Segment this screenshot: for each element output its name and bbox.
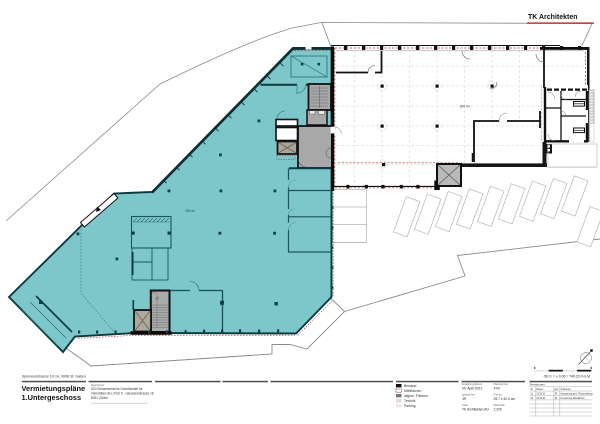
svg-text:Massstab: Massstab bbox=[494, 403, 506, 407]
svg-text:SGI Schweizerische Gesellschaf: SGI Schweizerische Gesellschaft für bbox=[91, 387, 143, 391]
svg-text:762 m²: 762 m² bbox=[185, 209, 195, 213]
svg-text:09. April 2021: 09. April 2021 bbox=[462, 387, 482, 391]
svg-text:allgem. Flächen: allgem. Flächen bbox=[404, 394, 428, 398]
svg-text:Autor: Autor bbox=[462, 403, 468, 407]
svg-text:1:200: 1:200 bbox=[494, 407, 502, 411]
svg-text:Anpassung gem. Rückmeldung: Anpassung gem. Rückmeldung bbox=[561, 393, 594, 396]
svg-text:Eigentümer: Eigentümer bbox=[91, 383, 104, 387]
svg-text:Nr.: Nr. bbox=[531, 388, 534, 391]
svg-text:gez.: gez. bbox=[555, 389, 560, 391]
svg-text:TK Architekten: TK Architekten bbox=[528, 12, 578, 21]
svg-text:1.Untergeschoss: 1.Untergeschoss bbox=[22, 393, 82, 402]
svg-text:Revisionen: Revisionen bbox=[530, 383, 545, 387]
svg-text:Datum: Datum bbox=[537, 388, 544, 391]
svg-text:XXX: XXX bbox=[494, 387, 501, 391]
svg-text:Plannummer: Plannummer bbox=[494, 382, 509, 386]
svg-text:Parking: Parking bbox=[404, 404, 416, 408]
svg-text:807 m²: 807 m² bbox=[460, 105, 470, 109]
svg-text:JR: JR bbox=[462, 397, 467, 401]
svg-text:Bestand: Bestand bbox=[404, 384, 417, 388]
svg-text:Änderung: Änderung bbox=[561, 388, 572, 391]
svg-text:Spinnereistrasse 10-14, 9008 S: Spinnereistrasse 10-14, 9008 St. Gallen bbox=[22, 374, 86, 378]
svg-text:Umnutzung Mietflächen: Umnutzung Mietflächen bbox=[561, 397, 586, 400]
svg-text:TK Architekten AG: TK Architekten AG bbox=[462, 407, 489, 411]
svg-text:Technik: Technik bbox=[404, 399, 416, 403]
svg-text:Mietflächen: Mietflächen bbox=[404, 389, 421, 393]
svg-text:Erstellungsdatum: Erstellungsdatum bbox=[462, 382, 482, 386]
svg-text:gezeichnet: gezeichnet bbox=[462, 392, 475, 396]
svg-text:Immobilien AG | Pub 5 - Giesse: Immobilien AG | Pub 5 - Giessereistrasse… bbox=[91, 392, 154, 396]
svg-text:OK F. = ± 0.00 = 749.23 m ü.M: OK F. = ± 0.00 = 749.23 m ü.M bbox=[544, 375, 591, 379]
svg-text:8031 Zürich: 8031 Zürich bbox=[91, 396, 108, 400]
svg-text:Vermietungspläne: Vermietungspläne bbox=[22, 384, 86, 393]
svg-text:Format: Format bbox=[494, 392, 502, 396]
svg-text:29.7 x 42.0 cm: 29.7 x 42.0 cm bbox=[494, 397, 516, 401]
